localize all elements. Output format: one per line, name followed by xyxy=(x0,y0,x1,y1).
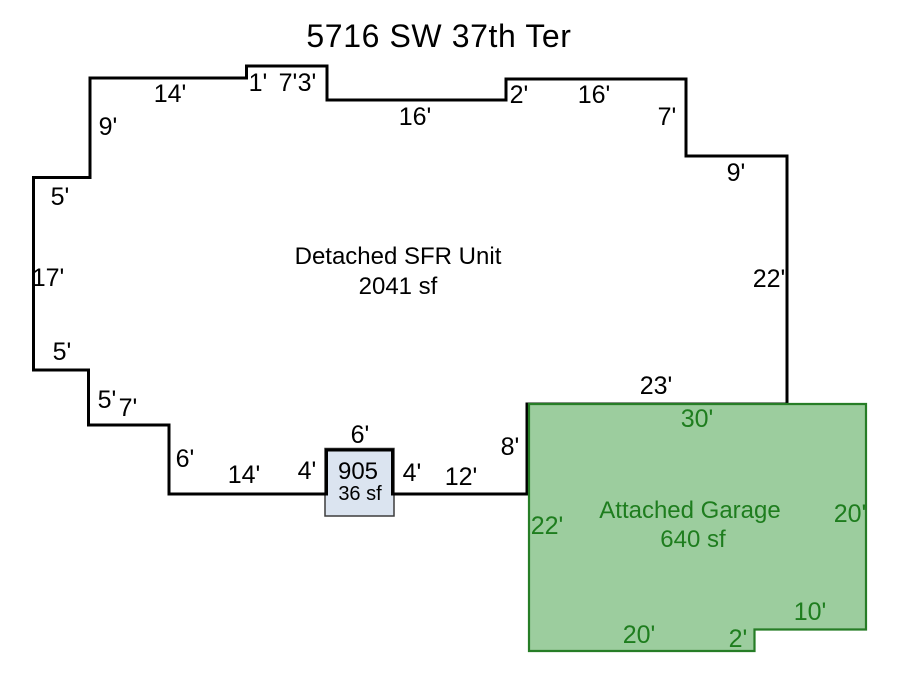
svg-text:4': 4' xyxy=(298,457,317,485)
svg-text:905: 905 xyxy=(338,458,378,485)
svg-text:4': 4' xyxy=(403,459,422,487)
svg-text:20': 20' xyxy=(623,621,656,649)
svg-text:640 sf: 640 sf xyxy=(660,526,726,553)
svg-text:5': 5' xyxy=(51,183,70,211)
svg-text:22': 22' xyxy=(753,265,786,293)
svg-text:5716 SW 37th Ter: 5716 SW 37th Ter xyxy=(306,18,571,54)
svg-text:2041 sf: 2041 sf xyxy=(359,273,438,300)
svg-text:3': 3' xyxy=(298,69,317,97)
svg-text:16': 16' xyxy=(578,81,611,109)
svg-text:20': 20' xyxy=(834,500,867,528)
svg-text:9': 9' xyxy=(727,159,746,187)
svg-text:7': 7' xyxy=(658,103,677,131)
svg-text:2': 2' xyxy=(729,625,748,653)
svg-text:14': 14' xyxy=(154,80,187,108)
svg-text:6': 6' xyxy=(351,421,370,449)
svg-text:36 sf: 36 sf xyxy=(338,483,382,505)
svg-text:Detached SFR Unit: Detached SFR Unit xyxy=(295,243,502,270)
svg-text:12': 12' xyxy=(445,463,478,491)
svg-text:22': 22' xyxy=(531,512,564,540)
svg-text:5': 5' xyxy=(53,338,72,366)
svg-text:1': 1' xyxy=(249,69,268,97)
svg-text:23': 23' xyxy=(640,372,673,400)
svg-text:2': 2' xyxy=(510,81,529,109)
svg-text:6': 6' xyxy=(176,445,195,473)
svg-text:17': 17' xyxy=(32,264,65,292)
svg-text:7': 7' xyxy=(279,69,298,97)
svg-text:16': 16' xyxy=(399,103,432,131)
svg-text:7': 7' xyxy=(119,394,138,422)
svg-text:30': 30' xyxy=(681,405,714,433)
svg-text:9': 9' xyxy=(99,113,118,141)
svg-text:10': 10' xyxy=(794,598,827,626)
svg-text:14': 14' xyxy=(228,461,261,489)
svg-text:Attached Garage: Attached Garage xyxy=(599,497,780,524)
svg-text:5': 5' xyxy=(98,386,117,414)
svg-text:8': 8' xyxy=(501,433,520,461)
